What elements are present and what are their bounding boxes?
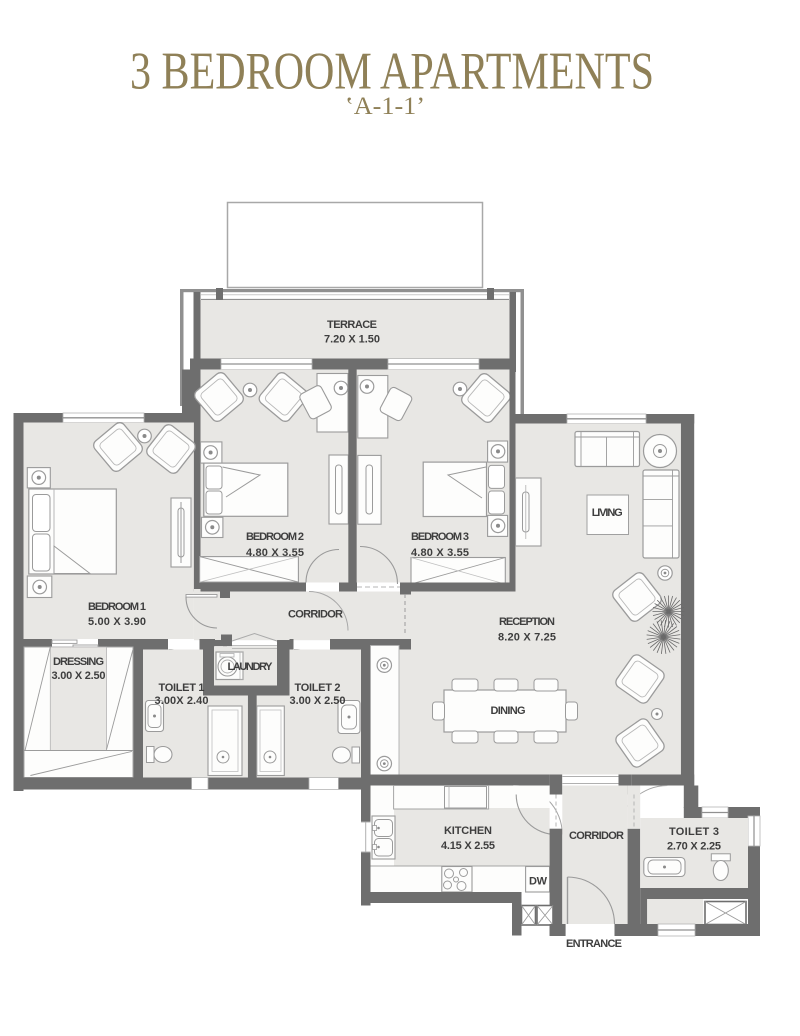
svg-text:3.00 X 2.50: 3.00 X 2.50 xyxy=(52,670,106,682)
svg-text:ENTRANCE: ENTRANCE xyxy=(566,938,622,950)
svg-text:TERRACE: TERRACE xyxy=(327,319,377,331)
svg-text:3 BEDROOM APARTMENTS: 3 BEDROOM APARTMENTS xyxy=(130,43,654,101)
svg-text:4.80 X 3.55: 4.80 X 3.55 xyxy=(246,547,304,559)
svg-text:3.00X 2.40: 3.00X 2.40 xyxy=(155,695,209,707)
svg-text:‛A-1-1’: ‛A-1-1’ xyxy=(345,93,425,120)
svg-text:5.00 X 3.90: 5.00 X 3.90 xyxy=(88,616,146,628)
svg-text:4.80 X 3.55: 4.80 X 3.55 xyxy=(411,547,469,559)
svg-text:DW: DW xyxy=(529,876,548,888)
svg-text:BEDROOM 1: BEDROOM 1 xyxy=(88,601,146,613)
svg-text:7.20 X 1.50: 7.20 X 1.50 xyxy=(324,334,380,346)
svg-text:LAUNDRY: LAUNDRY xyxy=(228,661,274,673)
svg-text:8.20 X 7.25: 8.20 X 7.25 xyxy=(498,632,556,644)
svg-text:LIVING: LIVING xyxy=(592,507,623,519)
svg-text:TOILET 1: TOILET 1 xyxy=(159,682,205,694)
svg-text:TOILET 3: TOILET 3 xyxy=(669,826,719,838)
svg-text:TOILET 2: TOILET 2 xyxy=(295,682,341,694)
svg-text:DINING: DINING xyxy=(491,705,526,717)
svg-text:4.15 X 2.55: 4.15 X 2.55 xyxy=(441,840,495,852)
svg-text:2.70 X 2.25: 2.70 X 2.25 xyxy=(667,841,721,853)
svg-text:BEDROOM 3: BEDROOM 3 xyxy=(411,531,469,543)
svg-text:CORRIDOR: CORRIDOR xyxy=(288,609,343,621)
svg-text:RECEPTION: RECEPTION xyxy=(499,616,555,628)
svg-text:CORRIDOR: CORRIDOR xyxy=(569,830,624,842)
svg-text:DRESSING: DRESSING xyxy=(53,656,104,668)
svg-text:BEDROOM 2: BEDROOM 2 xyxy=(246,531,304,543)
svg-text:KITCHEN: KITCHEN xyxy=(444,825,492,837)
svg-text:3.00 X 2.50: 3.00 X 2.50 xyxy=(290,695,346,707)
